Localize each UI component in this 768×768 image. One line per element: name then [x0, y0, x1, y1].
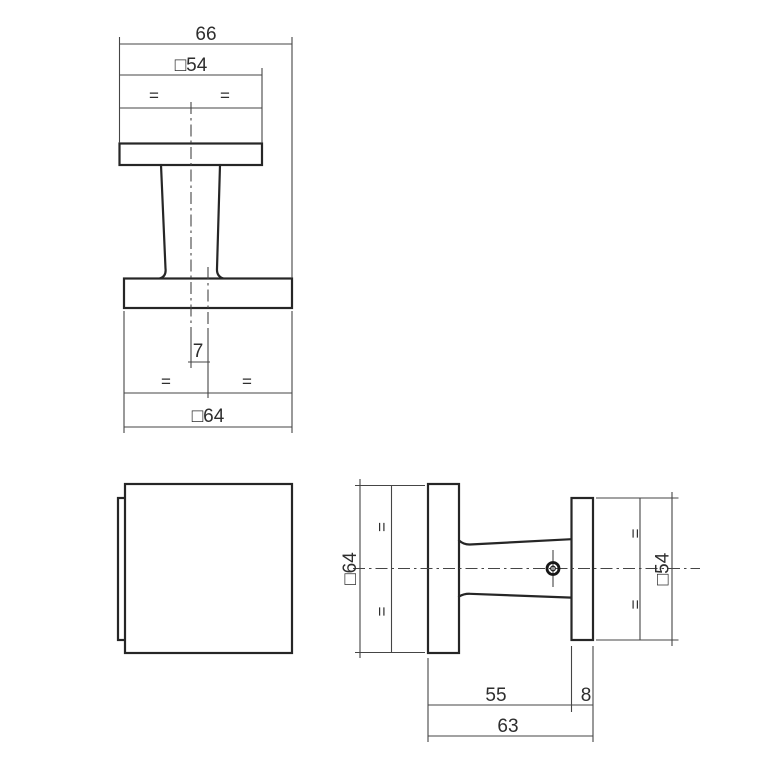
dim-label-overall-width: 66 — [195, 24, 216, 45]
knob-drawing-svg: 66 □54 = = 7 = = □64 □64 = = — [0, 0, 768, 768]
dim-label-offset: 7 — [193, 341, 204, 362]
dim-label-face-thickness: 8 — [581, 685, 592, 706]
technical-drawing-canvas: 66 □54 = = 7 = = □64 □64 = = — [0, 0, 768, 768]
view-front — [118, 484, 292, 653]
equal-mark: = — [242, 372, 252, 391]
equal-mark: = — [220, 86, 230, 105]
dim-label-face-square: □54 — [175, 55, 208, 76]
equal-mark: = — [373, 522, 392, 532]
equal-mark: = — [149, 86, 159, 105]
knob-neck-left-edge — [160, 165, 166, 279]
dim-label-base-square-v: □64 — [340, 552, 361, 585]
equal-mark: = — [161, 372, 171, 391]
equal-mark: = — [626, 599, 645, 609]
equal-mark: = — [626, 528, 645, 538]
dim-label-neck-length: 55 — [485, 685, 506, 706]
view-profile: □64 = = □54 = = 55 8 63 — [340, 479, 700, 742]
base-plate-face — [125, 484, 292, 653]
dim-label-total-projection: 63 — [497, 716, 518, 737]
view-side-elevation: 66 □54 = = 7 = = □64 — [120, 24, 293, 433]
knob-neck-right-edge — [217, 165, 224, 279]
equal-mark: = — [373, 606, 392, 616]
dim-label-face-square-v: □54 — [653, 552, 674, 585]
knob-neck-bottom-edge — [459, 594, 572, 598]
knob-neck-top-edge — [459, 539, 572, 544]
dim-label-base-square: □64 — [192, 406, 225, 427]
